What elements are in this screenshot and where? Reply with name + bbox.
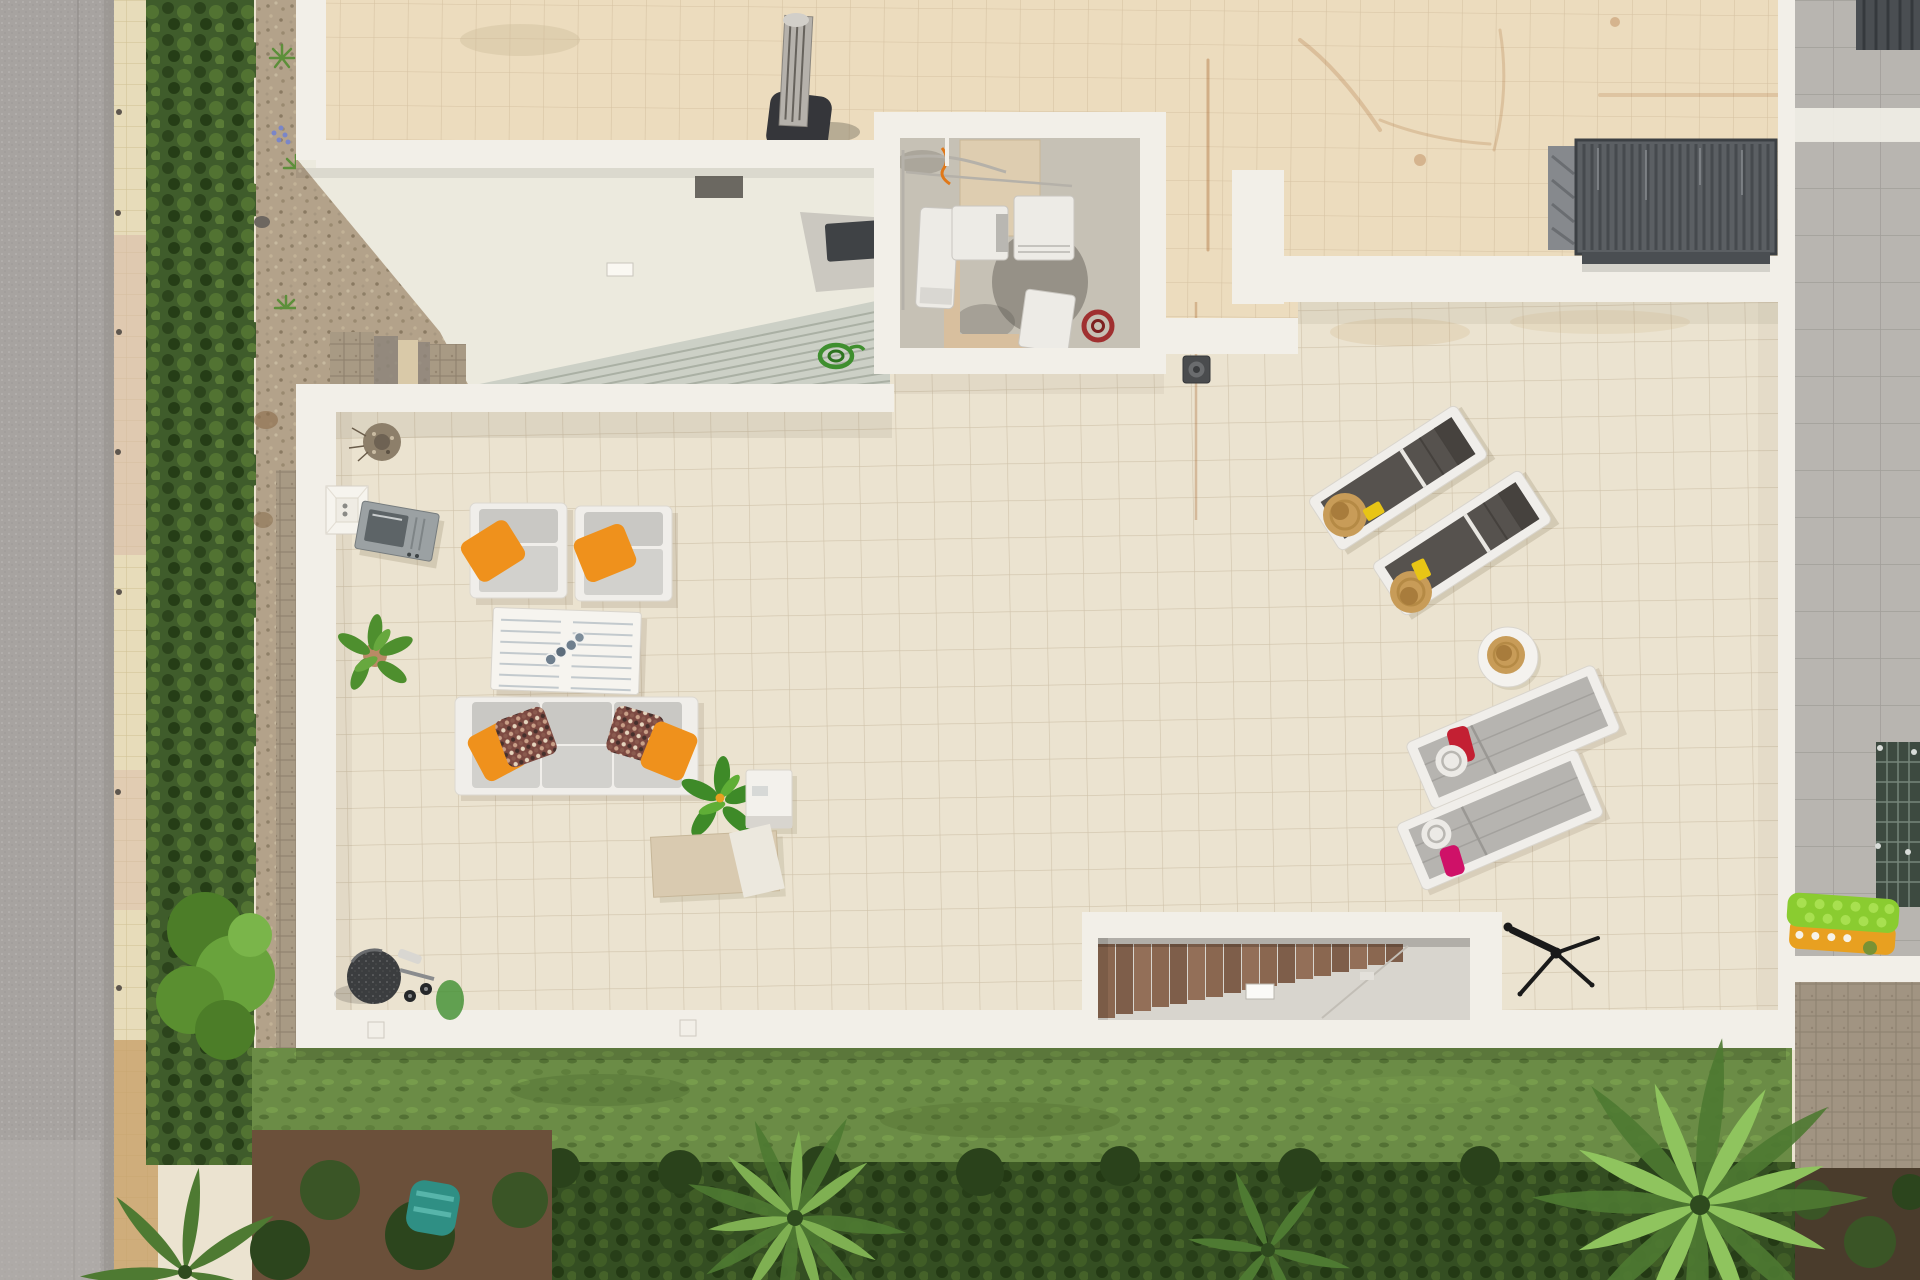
flower xyxy=(716,794,725,803)
upper-left-parapet xyxy=(296,0,326,160)
aerial-photo xyxy=(0,0,1920,1280)
porch xyxy=(296,158,890,388)
rock xyxy=(254,216,270,228)
stair-gap xyxy=(695,176,743,198)
skylight xyxy=(825,220,882,262)
coffee-table xyxy=(490,607,647,700)
upper-bottom-parapet xyxy=(316,140,896,168)
glass-grate xyxy=(1875,742,1920,907)
shrub xyxy=(436,980,464,1020)
terrace-bottom-wall xyxy=(296,1010,1786,1050)
terrace-top-wall xyxy=(296,384,894,412)
cube-stool xyxy=(746,770,797,834)
armchair-2 xyxy=(571,506,678,608)
sofa xyxy=(455,697,704,801)
neighbor-terrace xyxy=(1784,0,1920,1280)
pergola xyxy=(1548,140,1776,272)
wall-post xyxy=(680,1020,696,1036)
stair-light xyxy=(1246,984,1274,999)
garden-soil-bed xyxy=(250,1130,552,1280)
lower-staircase xyxy=(1082,912,1502,1052)
armchair-1 xyxy=(458,503,573,605)
utility-enclosure xyxy=(897,118,1140,353)
road xyxy=(0,0,114,1280)
ceiling-light xyxy=(607,263,633,276)
teal-float xyxy=(404,1178,462,1238)
terrace-left-wall xyxy=(296,384,336,1016)
floor-drain xyxy=(1183,356,1210,383)
terrace-right-wall xyxy=(1778,0,1796,1050)
wall-post xyxy=(368,1022,384,1038)
pool-float xyxy=(1784,892,1900,956)
